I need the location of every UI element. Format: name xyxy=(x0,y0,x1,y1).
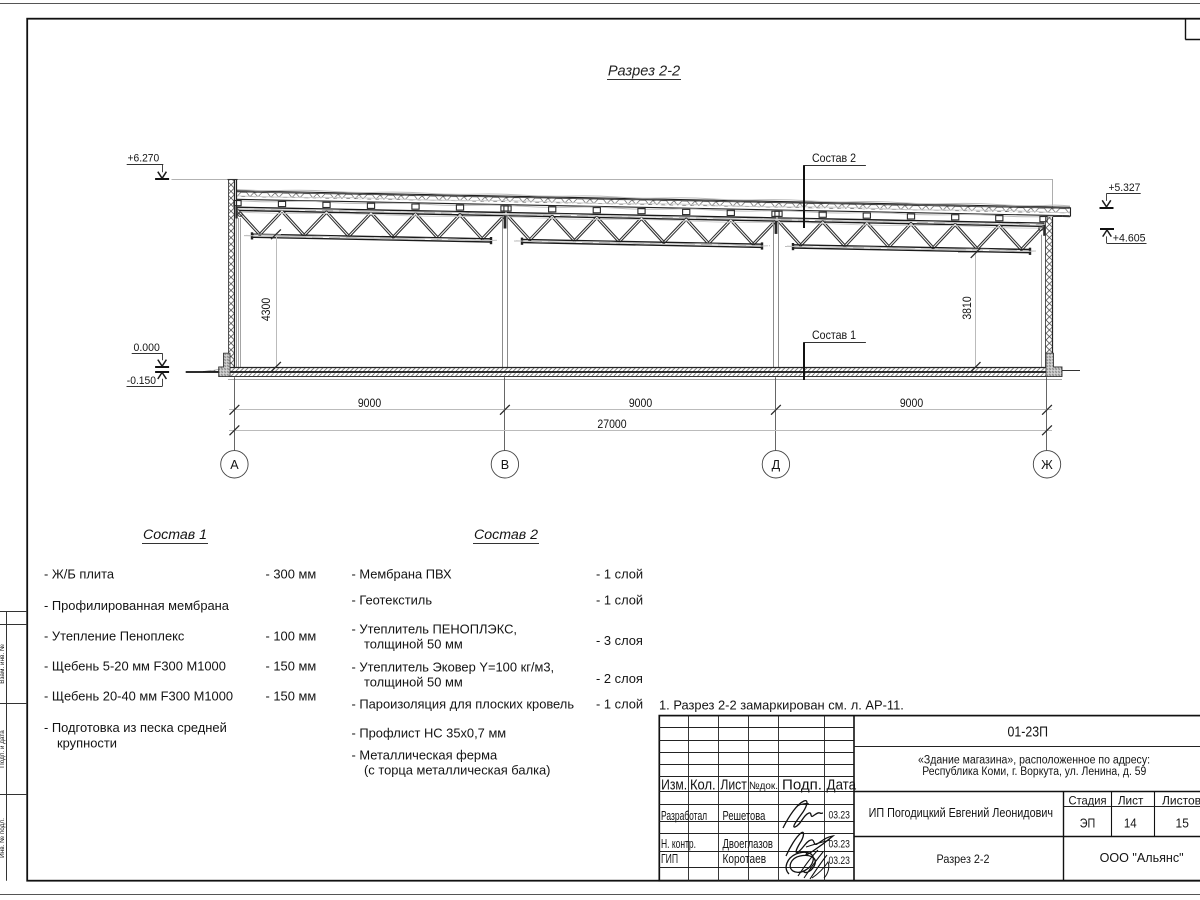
svg-text:ГИП: ГИП xyxy=(661,851,678,866)
svg-text:Дата: Дата xyxy=(827,777,857,793)
svg-text:ЭП: ЭП xyxy=(1080,817,1096,831)
svg-text:+6.270: +6.270 xyxy=(128,153,160,165)
svg-text:- Ж/Б плита: - Ж/Б плита xyxy=(44,567,115,582)
svg-text:- Металлическая ферма: - Металлическая ферма xyxy=(352,748,498,763)
svg-text:Решетова: Решетова xyxy=(723,808,766,823)
svg-text:Д: Д xyxy=(772,458,781,472)
svg-text:Листов: Листов xyxy=(1162,793,1200,807)
svg-text:- Щебень 5-20 мм F300 М1000: - Щебень 5-20 мм F300 М1000 xyxy=(44,659,226,674)
svg-text:4300: 4300 xyxy=(260,298,273,321)
svg-text:- 1 слой: - 1 слой xyxy=(596,697,643,712)
svg-text:03.23: 03.23 xyxy=(829,838,850,850)
svg-text:крупности: крупности xyxy=(57,736,117,751)
svg-text:- 100 мм: - 100 мм xyxy=(266,629,317,644)
svg-text:Взам. инв. №: Взам. инв. № xyxy=(0,644,6,684)
svg-text:9000: 9000 xyxy=(900,397,923,410)
svg-text:(с торца металлическая балка): (с торца металлическая балка) xyxy=(364,763,550,778)
svg-text:ИП Погодицкий Евгений Леонидов: ИП Погодицкий Евгений Леонидович xyxy=(869,806,1053,820)
svg-text:Состав 1: Состав 1 xyxy=(143,527,207,543)
svg-text:Разрез 2-2: Разрез 2-2 xyxy=(608,64,680,80)
svg-text:9000: 9000 xyxy=(629,397,652,410)
svg-text:Инв. № подл.: Инв. № подл. xyxy=(0,818,6,858)
svg-text:- Щебень 20-40 мм F300 М1000: - Щебень 20-40 мм F300 М1000 xyxy=(44,689,233,704)
svg-text:15: 15 xyxy=(1176,817,1189,831)
svg-text:- Мембрана ПВХ: - Мембрана ПВХ xyxy=(352,567,453,582)
svg-text:Состав 2: Состав 2 xyxy=(812,152,856,165)
svg-text:14: 14 xyxy=(1124,817,1137,831)
svg-text:- Утепление Пеноплекс: - Утепление Пеноплекс xyxy=(44,629,185,644)
svg-text:- 2 слоя: - 2 слоя xyxy=(596,671,643,686)
svg-text:+4.605: +4.605 xyxy=(1113,232,1146,244)
svg-text:Состав 1: Состав 1 xyxy=(812,329,856,342)
svg-text:0.000: 0.000 xyxy=(134,342,160,354)
svg-text:03.23: 03.23 xyxy=(829,855,850,867)
svg-text:+5.327: +5.327 xyxy=(1109,182,1141,194)
svg-text:Подп.: Подп. xyxy=(782,777,822,793)
svg-text:- 300 мм: - 300 мм xyxy=(266,567,317,582)
svg-text:-0.150: -0.150 xyxy=(127,375,156,387)
svg-text:3810: 3810 xyxy=(961,296,974,319)
svg-text:- 150 мм: - 150 мм xyxy=(266,659,317,674)
svg-text:«Здание магазина», расположенн: «Здание магазина», расположенное по адре… xyxy=(918,755,1150,767)
svg-text:03.23: 03.23 xyxy=(829,809,850,821)
svg-text:- Подготовка из песка средней: - Подготовка из песка средней xyxy=(44,720,227,735)
svg-text:Кол.: Кол. xyxy=(690,777,716,793)
svg-text:- Утеплитель Эковер Y=100 кг/м: - Утеплитель Эковер Y=100 кг/м3, xyxy=(352,660,555,675)
svg-text:- Пароизоляция для плоских кро: - Пароизоляция для плоских кровель xyxy=(352,697,575,712)
svg-text:Н. контр.: Н. контр. xyxy=(661,836,696,851)
svg-text:9000: 9000 xyxy=(358,397,381,410)
svg-text:Состав 2: Состав 2 xyxy=(474,527,538,543)
svg-text:толщиной 50 мм: толщиной 50 мм xyxy=(364,675,463,690)
svg-text:ООО "Альянс": ООО "Альянс" xyxy=(1100,850,1184,865)
svg-text:Двоеглазов: Двоеглазов xyxy=(723,836,773,851)
svg-text:Лист: Лист xyxy=(1118,793,1144,807)
svg-text:- Утеплитель ПЕНОПЛЭКС,: - Утеплитель ПЕНОПЛЭКС, xyxy=(352,622,517,637)
svg-text:Стадия: Стадия xyxy=(1069,793,1107,807)
svg-text:А: А xyxy=(230,458,239,472)
svg-text:- Профилированная мембрана: - Профилированная мембрана xyxy=(44,598,230,613)
svg-text:- Геотекстиль: - Геотекстиль xyxy=(352,593,433,608)
svg-text:В: В xyxy=(501,458,509,472)
svg-text:№док.: №док. xyxy=(749,780,778,792)
svg-text:- Профлист НС 35х0,7 мм: - Профлист НС 35х0,7 мм xyxy=(352,726,507,741)
svg-text:толщиной 50 мм: толщиной 50 мм xyxy=(364,637,463,652)
svg-text:Республика Коми, г. Воркута, у: Республика Коми, г. Воркута, ул. Ленина,… xyxy=(922,766,1146,778)
svg-text:Подп. и дата: Подп. и дата xyxy=(0,730,6,768)
svg-text:Ж: Ж xyxy=(1041,458,1053,472)
svg-text:Лист: Лист xyxy=(720,777,747,793)
svg-text:- 1 слой: - 1 слой xyxy=(596,593,643,608)
svg-text:- 1 слой: - 1 слой xyxy=(596,567,643,582)
svg-text:- 3 слоя: - 3 слоя xyxy=(596,633,643,648)
svg-text:27000: 27000 xyxy=(597,418,626,431)
svg-text:Разработал: Разработал xyxy=(661,808,707,823)
svg-text:1. Разрез 2-2 замаркирован см.: 1. Разрез 2-2 замаркирован см. л. АР-11. xyxy=(659,698,904,713)
svg-text:- 150 мм: - 150 мм xyxy=(266,689,317,704)
svg-text:Коротаев: Коротаев xyxy=(723,851,767,866)
svg-text:Изм.: Изм. xyxy=(661,777,687,793)
svg-text:01-23П: 01-23П xyxy=(1008,724,1049,740)
svg-text:Разрез 2-2: Разрез 2-2 xyxy=(937,852,990,866)
